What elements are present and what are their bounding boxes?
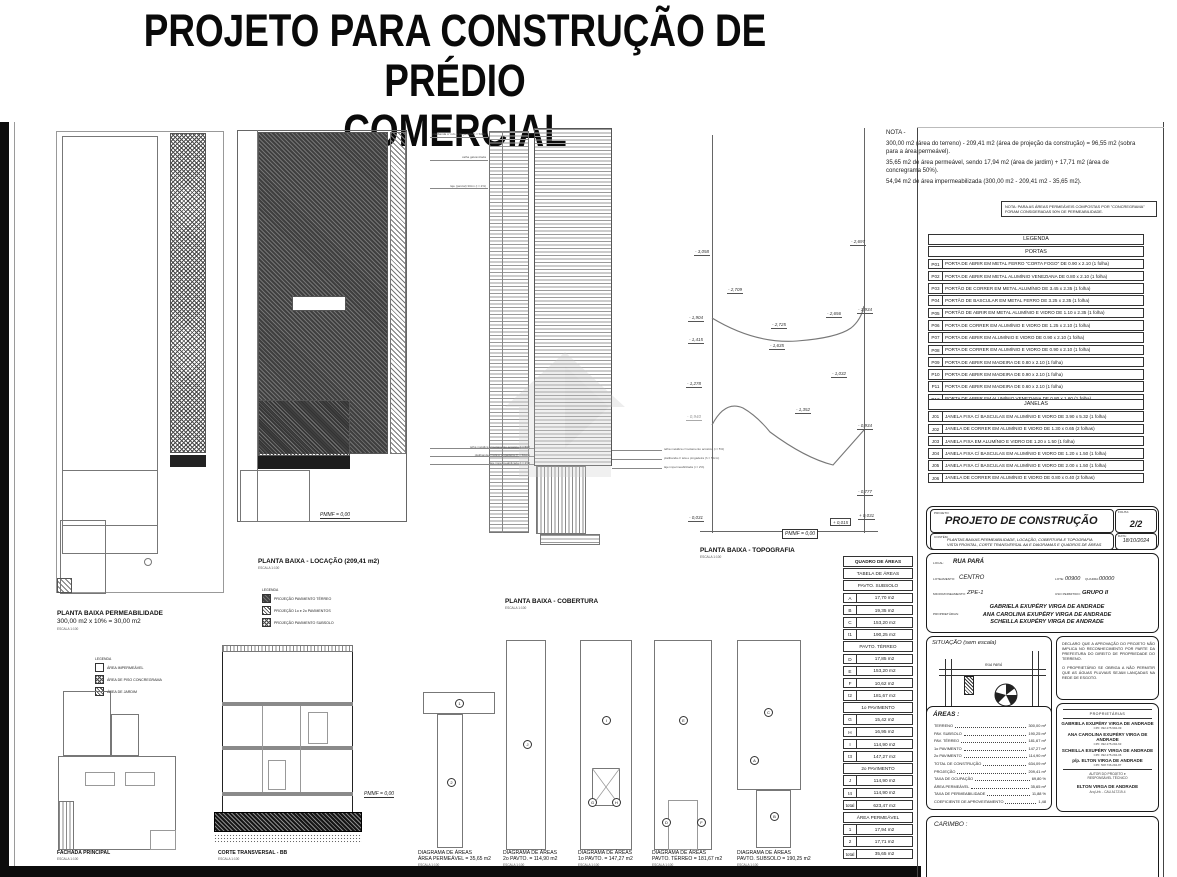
elevation-label: - 0,940 bbox=[686, 414, 702, 421]
quadro-row: t2181,67 m2 bbox=[843, 690, 913, 701]
page-title-line1: PROJETO PARA CONSTRUÇÃO DE PRÉDIO bbox=[82, 6, 828, 106]
elevation-label: - 1,032 bbox=[831, 371, 847, 378]
diagram-label-escala: ESCALA 1:100 bbox=[652, 862, 722, 868]
dotted-leader bbox=[987, 792, 1030, 796]
elevation-label: - 0,031 bbox=[688, 515, 704, 522]
quadro-row-value: 10,62 m2 bbox=[857, 681, 912, 686]
areas-row-label: TERRENO bbox=[934, 723, 953, 728]
declaracao-box: DECLARO QUE A APROVAÇÃO DO PROJETO NÃO I… bbox=[1056, 636, 1159, 700]
quadro-row-label: F bbox=[844, 679, 857, 688]
legend-permeabilidade: LEGENDA ÁREA IMPERMEÁVEL ÁREA DE PISO CO… bbox=[95, 657, 215, 699]
label-topografia: PLANTA BAIXA - TOPOGRAFIA ESCALA 1:100 bbox=[700, 547, 795, 559]
cobertura-annotation: platibanda c/ tela e pingadeira (h = 50c… bbox=[475, 453, 530, 457]
pmmf-corte: PMMF = 0,00 bbox=[364, 791, 394, 798]
area-marker: J bbox=[523, 740, 532, 749]
quadro-row: C153,20 m2 bbox=[843, 617, 913, 628]
areas-row: TOTAL DE CONSTRUÇÃO634,09 m² bbox=[934, 761, 1046, 766]
assinaturas-box: PROPRIETÁRIAS GABRIELA EXUPÉRY VIRGA DE … bbox=[1056, 703, 1159, 812]
area-marker: I bbox=[602, 716, 611, 725]
porta-row: P04PORTÃO DE BASCULAR EM METAL FERRO DE … bbox=[928, 295, 1144, 306]
diagram-label-escala: ESCALA 1:100 bbox=[737, 862, 811, 868]
swatch-concregrama bbox=[95, 675, 104, 684]
quadro-row-label: t4 bbox=[844, 789, 857, 798]
quadro-row-label: t1 bbox=[844, 630, 857, 639]
elevation-label: - 1,934 bbox=[857, 307, 873, 314]
row-desc: PORTÃO DE CORRER EM METAL ALUMÍNIO DE 3.… bbox=[943, 286, 1143, 291]
quadro-row-value: 153,20 m2 bbox=[857, 620, 912, 625]
areas-row-label: COEFICIENTE DE APROVEITAMENTO bbox=[934, 799, 1003, 804]
proprietaria-name: ANA CAROLINA EXUPÉRY VIRGA DE ANDRADE bbox=[1057, 732, 1158, 742]
elevation-label: - 2,709 bbox=[727, 287, 743, 294]
blueprint-sheet: PROJETO PARA CONSTRUÇÃO DE PRÉDIO COMERC… bbox=[0, 0, 1177, 877]
table-header: LEGENDA bbox=[928, 234, 1144, 245]
quadro-de-areas-table: QUADRO DE ÁREASTABELA DE ÁREASPAVTO. SUB… bbox=[843, 556, 913, 861]
quadro-row-value: 623,47 m2 bbox=[857, 803, 912, 808]
assinaturas-heading: PROPRIETÁRIAS bbox=[1057, 712, 1158, 716]
area-marker: C bbox=[764, 708, 773, 717]
quadro-row-value: 153,20 m2 bbox=[857, 668, 912, 673]
quadro-row-value: 114,90 m2 bbox=[857, 778, 912, 783]
areas-row: 1o PAVIMENTO147,27 m² bbox=[934, 746, 1046, 751]
lote-value: 00900 bbox=[1065, 576, 1080, 582]
janela-row: J04JANELA FIXA C/ BASCULAS EM ALUMÍNIO E… bbox=[928, 448, 1144, 459]
areas-row-value: 209,41 m² bbox=[1028, 769, 1046, 774]
row-desc: PORTÃO DE BASCULAR EM METAL FERRO DE 3.2… bbox=[943, 298, 1143, 303]
nota-line: 300,00 m2 (área do terreno) - 209,41 m2 … bbox=[886, 140, 1144, 157]
quadro-row-value: 35,65 m2 bbox=[857, 851, 912, 856]
areas-row-value: 11,88 % bbox=[1032, 791, 1046, 796]
row-code: P06 bbox=[929, 321, 943, 330]
elevation-label: + 0,031 bbox=[858, 513, 875, 520]
areas-row: 2o PAVIMENTO114,90 m² bbox=[934, 753, 1046, 758]
autor-caption: AUTOR DO PROJETO e RESPONSÁVEL TÉCNICO bbox=[1057, 772, 1158, 780]
row-code: P11 bbox=[929, 382, 943, 391]
label-corte: CORTE TRANSVERSAL - BB ESCALA 1:100 bbox=[218, 850, 287, 862]
area-marker: G bbox=[588, 798, 597, 807]
areas-row: TAXA DE PERMEABILIDADE11,88 % bbox=[934, 791, 1046, 796]
sheet-frame-line bbox=[917, 128, 918, 877]
table-header: PORTAS bbox=[928, 246, 1144, 257]
area-marker: 2 bbox=[447, 778, 456, 787]
row-desc: PORTA DE CORRER EM ALUMÍNIO E VIDRO DE 0… bbox=[943, 347, 1143, 352]
row-code: P02 bbox=[929, 272, 943, 281]
nota-line: 54,94 m2 de área impermeabilizada (300,0… bbox=[886, 178, 1144, 186]
areas-row-value: 69,80 % bbox=[1032, 776, 1046, 781]
quadro-row-value: 114,90 m2 bbox=[857, 790, 912, 795]
row-code: J02 bbox=[929, 425, 943, 434]
quadro-row-value: 147,27 m2 bbox=[857, 754, 912, 759]
contem-line2: VISTA FRONTAL, CORTE TRANSVERSAL AA E DI… bbox=[947, 542, 1101, 547]
local-value: RUA PARÁ bbox=[953, 559, 984, 565]
areas-row-label: TAXA DE OCUPAÇÃO bbox=[934, 776, 973, 781]
porta-row: P07PORTA DE ABRIR EM ALUMÍNIO E VIDRO DE… bbox=[928, 332, 1144, 343]
row-code: J06 bbox=[929, 474, 943, 483]
loteamento-label: LOTEAMENTO: bbox=[933, 577, 955, 581]
quadro-row: A17,70 m2 bbox=[843, 593, 913, 604]
areas-row-value: 190,25 m² bbox=[1028, 731, 1046, 736]
legend-locacao: LEGENDA PROJEÇÃO PAVIMENTO TÉRREO PROJEÇ… bbox=[262, 588, 402, 630]
quadro-row-label: total bbox=[844, 801, 857, 810]
porta-row: P10PORTA DE ABRIR EM MADEIRA DE 0.90 x 2… bbox=[928, 369, 1144, 380]
row-desc: PORTA DE CORRER EM ALUMÍNIO E VIDRO DE 1… bbox=[943, 323, 1143, 328]
areas-row-label: TAXA DE PERMEABILIDADE bbox=[934, 791, 985, 796]
quadro-row-value: 19,35 m2 bbox=[857, 608, 912, 613]
local-label: LOCAL: bbox=[933, 561, 944, 565]
row-code: J01 bbox=[929, 412, 943, 421]
elevation-label: - 2,697 bbox=[850, 239, 866, 246]
cobertura-annotation: laje impermeabilizada (i = 2%) bbox=[664, 465, 704, 469]
quadro-row-label: I bbox=[844, 740, 857, 749]
proprietaria-cpf: CPF: 092.275.294-06 bbox=[1057, 753, 1158, 757]
nota-permeaveis-box: NOTA: PARA AS ÁREAS PERMEÁVEIS COMPOSTAS… bbox=[1001, 201, 1157, 217]
proprietarias-names: GABRIELA EXUPÉRY VIRGA DE ANDRADE ANA CA… bbox=[957, 604, 1137, 627]
quadro-row-label: total bbox=[844, 850, 857, 859]
dotted-leader bbox=[964, 754, 1027, 758]
quadro-row: J114,90 m2 bbox=[843, 775, 913, 786]
swatch-impermeavel bbox=[95, 663, 104, 672]
area-marker: D bbox=[662, 818, 671, 827]
quadro-row-label: D bbox=[844, 655, 857, 664]
porta-row: P06PORTA DE CORRER EM ALUMÍNIO E VIDRO D… bbox=[928, 320, 1144, 331]
areas-row: TAXA DE OCUPAÇÃO69,80 % bbox=[934, 776, 1046, 781]
autor-registro: Arq.Urb. - CAU A17219-4 bbox=[1057, 790, 1158, 794]
house-watermark bbox=[505, 352, 625, 477]
quadro-section-header: 1o PAVIMENTO bbox=[843, 702, 913, 713]
areas-row-label: TOTAL DE CONSTRUÇÃO bbox=[934, 761, 981, 766]
area-marker: H bbox=[612, 798, 621, 807]
janela-row: J01JANELA FIXA C/ BASCULAS EM ALUMÍNIO E… bbox=[928, 411, 1144, 422]
folha-label: FOLHA: bbox=[1116, 510, 1156, 514]
areas-row: TERRENO300,00 m² bbox=[934, 723, 1046, 728]
quadro-row-label: B bbox=[844, 606, 857, 615]
pmmf-topografia: PMMF = 0,00 bbox=[782, 529, 818, 539]
quadra-value: 00000 bbox=[1099, 576, 1114, 582]
quadro-row-value: 17,70 m2 bbox=[857, 595, 912, 600]
areas-row-value: 300,00 m² bbox=[1028, 723, 1046, 728]
pmmf-locacao: PMMF = 0,00 bbox=[320, 512, 350, 519]
row-desc: PORTA DE ABRIR EM MADEIRA DE 0.80 x 2.10… bbox=[943, 360, 1143, 365]
swatch-proj-subsolo bbox=[262, 618, 271, 627]
row-desc: JANELA FIXA EM ALUMÍNIO E VIDRO DE 1.20 … bbox=[943, 439, 1143, 444]
area-marker: 1 bbox=[455, 699, 464, 708]
quadro-section-header: 2o PAVIMENTO bbox=[843, 763, 913, 774]
area-marker: B bbox=[770, 812, 779, 821]
portas-table: LEGENDAPORTASP01PORTA DE ABRIR EM METAL … bbox=[928, 234, 1144, 406]
quadro-row: G15,42 m2 bbox=[843, 714, 913, 725]
quadro-row-label: t3 bbox=[844, 752, 857, 761]
titleblock-info: LOCAL: RUA PARÁ LOTEAMENTO: CENTRO LOTE:… bbox=[926, 553, 1159, 633]
situacao-street-name: RUA PARÁ bbox=[985, 663, 1002, 667]
row-code: P09 bbox=[929, 358, 943, 367]
quadro-row-value: 15,42 m2 bbox=[857, 717, 912, 722]
elevation-label: - 2,725 bbox=[771, 322, 787, 329]
area-marker: F bbox=[697, 818, 706, 827]
diagram-label: DIAGRAMA DE ÁREAS1o PAVTO. = 147,27 m2ES… bbox=[578, 850, 633, 868]
quadro-row: H16,95 m2 bbox=[843, 727, 913, 738]
elevation-label: - 1,352 bbox=[795, 407, 811, 414]
swatch-proj-1e2 bbox=[262, 606, 271, 615]
quadro-row-label: A bbox=[844, 594, 857, 603]
swatch-proj-terreo bbox=[262, 594, 271, 603]
situacao-title: SITUAÇÃO (sem escala) bbox=[932, 640, 996, 646]
cobertura-annotation: telha metálica c/ isolamento acústico (i… bbox=[664, 447, 724, 451]
quadro-row-label: G bbox=[844, 715, 857, 724]
titleblock-header: PROJETO: PROJETO DE CONSTRUÇÃO FOLHA: 2/… bbox=[926, 506, 1159, 550]
label-fachada: FACHADA PRINCIPAL ESCALA 1:100 bbox=[57, 850, 110, 862]
quadro-row: F10,62 m2 bbox=[843, 678, 913, 689]
porta-row: P03PORTÃO DE CORRER EM METAL ALUMÍNIO DE… bbox=[928, 283, 1144, 294]
elevation-label: - 0,934 bbox=[857, 423, 873, 430]
nota-heading: NOTA - bbox=[886, 129, 1144, 137]
cobertura-annotation: laje impermeabilizada (i = 2%) bbox=[490, 461, 530, 465]
areas-row-value: 114,90 m² bbox=[1029, 753, 1046, 758]
quadro-row-value: 17,71 m2 bbox=[857, 839, 912, 844]
quadro-row-label: J bbox=[844, 776, 857, 785]
cobertura-annotation: platibanda c/ tela e pingadeira (h = 50c… bbox=[664, 456, 719, 460]
label-locacao: PLANTA BAIXA - LOCAÇÃO (209,41 m2) ESCAL… bbox=[258, 558, 379, 570]
quadro-row-value: 16,95 m2 bbox=[857, 729, 912, 734]
situacao-lot-marker bbox=[964, 676, 974, 695]
microzoneamento-value: ZPE-1 bbox=[967, 590, 983, 596]
areas-row-label: PROJEÇÃO bbox=[934, 769, 955, 774]
porta-row: P09PORTA DE ABRIR EM MADEIRA DE 0.80 x 2… bbox=[928, 357, 1144, 368]
elevation-label: - 2,656 bbox=[826, 311, 842, 318]
uso-permitido-label: USO PERMITIDO: bbox=[1055, 592, 1081, 596]
uso-permitido-value: GRUPO II bbox=[1082, 590, 1108, 596]
diagram-label-escala: ESCALA 1:100 bbox=[578, 862, 633, 868]
areas-row-label: PAV. TÉRREO bbox=[934, 738, 959, 743]
proprietaria-cpf: CPF: 508.736.294-87 bbox=[1057, 763, 1158, 767]
quadro-row-value: 17,85 m2 bbox=[857, 656, 912, 661]
sheet-edge-left bbox=[0, 122, 9, 877]
row-code: P05 bbox=[929, 309, 943, 318]
diagram-label: DIAGRAMA DE ÁREASÁREA PERMEÁVEL = 35,65 … bbox=[418, 850, 491, 868]
janela-row: J03JANELA FIXA EM ALUMÍNIO E VIDRO DE 1.… bbox=[928, 436, 1144, 447]
row-code: P03 bbox=[929, 284, 943, 293]
label-permeabilidade: PLANTA BAIXA PERMEABILIDADE 300,00 m2 x … bbox=[57, 610, 163, 631]
topografia-contours bbox=[655, 240, 880, 540]
row-code: J05 bbox=[929, 461, 943, 470]
data-value: 18/10/2024 bbox=[1116, 538, 1156, 544]
contem-line1: PLANTAS BAIXAS PERMEABILIDADE, LOCAÇÃO, … bbox=[947, 537, 1093, 542]
quadro-section-header: PAVTO. TÉRREO bbox=[843, 641, 913, 652]
row-desc: JANELA FIXA C/ BASCULAS EM ALUMÍNIO E VI… bbox=[943, 451, 1143, 456]
cobertura-annotation: laje (parcial) 30cm (i = 2%) bbox=[450, 184, 486, 188]
elevation-label: + 0,015 bbox=[830, 518, 851, 526]
row-code: P07 bbox=[929, 333, 943, 342]
row-desc: JANELA FIXA C/ BASCULAS EM ALUMÍNIO E VI… bbox=[943, 463, 1143, 468]
quadro-section-header: ÁREA PERMEÁVEL bbox=[843, 812, 913, 823]
areas-row-label: 2o PAVIMENTO bbox=[934, 753, 962, 758]
quadro-row-label: 1 bbox=[844, 825, 857, 834]
lote-label: LOTE: bbox=[1055, 577, 1064, 581]
quadro-row: t1190,25 m2 bbox=[843, 629, 913, 640]
areas-row: COEFICIENTE DE APROVEITAMENTO1,48 bbox=[934, 799, 1046, 804]
quadro-row: D17,85 m2 bbox=[843, 654, 913, 665]
sheet-frame-line bbox=[14, 122, 15, 866]
porta-row: P08PORTA DE CORRER EM ALUMÍNIO E VIDRO D… bbox=[928, 345, 1144, 356]
janelas-table: JANELASJ01JANELA FIXA C/ BASCULAS EM ALU… bbox=[928, 399, 1144, 485]
quadro-row-label: E bbox=[844, 667, 857, 676]
label-cobertura: PLANTA BAIXA - COBERTURA ESCALA 1:100 bbox=[505, 598, 598, 610]
row-code: P10 bbox=[929, 370, 943, 379]
row-desc: JANELA FIXA C/ BASCULAS EM ALUMÍNIO E VI… bbox=[943, 414, 1143, 419]
sheet-frame-line bbox=[917, 127, 1164, 128]
porta-row: P05PORTÃO DE ABRIR EM METAL ALUMÍNIO E V… bbox=[928, 308, 1144, 319]
porta-row: P11PORTA DE ABRIR EM MADEIRA DE 0.60 x 2… bbox=[928, 381, 1144, 392]
row-code: P04 bbox=[929, 296, 943, 305]
quadro-row-label: 2 bbox=[844, 837, 857, 846]
quadro-row: E153,20 m2 bbox=[843, 666, 913, 677]
quadro-row-label: C bbox=[844, 618, 857, 627]
quadro-row: t4114,90 m2 bbox=[843, 788, 913, 799]
carimbo-box: CARIMBO : bbox=[926, 816, 1159, 877]
areas-row-value: 634,09 m² bbox=[1028, 761, 1046, 766]
row-desc: JANELA DE CORRER EM ALUMÍNIO E VIDRO DE … bbox=[943, 426, 1143, 431]
row-code: J03 bbox=[929, 437, 943, 446]
quadro-row-value: 17,94 m2 bbox=[857, 827, 912, 832]
projeto-value: PROJETO DE CONSTRUÇÃO bbox=[945, 515, 1098, 527]
table-header: JANELAS bbox=[928, 399, 1144, 410]
areas-row-value: 1,48 bbox=[1038, 799, 1046, 804]
quadro-row: total623,47 m2 bbox=[843, 800, 913, 811]
diagram-label: DIAGRAMA DE ÁREASPAVTO. TÉRREO = 181,67 … bbox=[652, 850, 722, 868]
quadro-row: total35,65 m2 bbox=[843, 849, 913, 860]
diagram-label-escala: ESCALA 1:100 bbox=[418, 862, 491, 868]
folha-value: 2/2 bbox=[1130, 519, 1143, 529]
dotted-leader bbox=[955, 724, 1026, 728]
areas-row-value: 35,65 m² bbox=[1031, 784, 1046, 789]
quadra-label: QUADRA: bbox=[1085, 577, 1099, 581]
quadro-title: QUADRO DE ÁREAS bbox=[843, 556, 913, 567]
proprietaria-name: SCHEILLA EXUPÉRY VIRGA DE ANDRADE bbox=[1057, 748, 1158, 753]
proprietarias-label: PROPRIETÁRIAS: bbox=[933, 612, 959, 616]
area-marker: E bbox=[679, 716, 688, 725]
elevation-label: - 3,058 bbox=[694, 249, 710, 256]
quadro-row: t3147,27 m2 bbox=[843, 751, 913, 762]
nota-line: 35,65 m2 de área permeável, sendo 17,94 … bbox=[886, 159, 1144, 176]
diagram-label: DIAGRAMA DE ÁREAS2o PAVTO. = 114,90 m2ES… bbox=[503, 850, 557, 868]
declaracao-text: DECLARO QUE A APROVAÇÃO DO PROJETO NÃO I… bbox=[1062, 642, 1155, 681]
dotted-leader bbox=[964, 732, 1027, 736]
nota-text: NOTA - 300,00 m2 (área do terreno) - 209… bbox=[886, 129, 1144, 189]
quadro-row: 217,71 m2 bbox=[843, 836, 913, 847]
row-desc: PORTA DE ABRIR EM MADEIRA DE 0.90 x 2.10… bbox=[943, 372, 1143, 377]
cobertura-annotation: calha galvanizada bbox=[462, 155, 486, 159]
quadro-row: 117,94 m2 bbox=[843, 824, 913, 835]
diagram-label-escala: ESCALA 1:100 bbox=[503, 862, 557, 868]
areas-row: PROJEÇÃO209,41 m² bbox=[934, 769, 1046, 774]
janela-row: J02JANELA DE CORRER EM ALUMÍNIO E VIDRO … bbox=[928, 424, 1144, 435]
microzoneamento-label: MICROZONEAMENTO: bbox=[933, 592, 966, 596]
row-code: P08 bbox=[929, 346, 943, 355]
row-code: J04 bbox=[929, 449, 943, 458]
row-desc: PORTA DE ABRIR EM MADEIRA DE 0.60 x 2.10… bbox=[943, 384, 1143, 389]
proprietaria-cpf: CPF: 092.275.294-63 bbox=[1057, 742, 1158, 746]
assinaturas-entries: GABRIELA EXUPÉRY VIRGA DE ANDRADECPF: 09… bbox=[1057, 721, 1158, 767]
areas-row-value: 147,27 m² bbox=[1028, 746, 1046, 751]
janela-row: J05JANELA FIXA C/ BASCULAS EM ALUMÍNIO E… bbox=[928, 460, 1144, 471]
row-desc: PORTÃO DE ABRIR EM METAL ALUMÍNIO E VIDR… bbox=[943, 310, 1143, 315]
quadro-row-value: 190,25 m2 bbox=[857, 632, 912, 637]
quadro-row: I114,90 m2 bbox=[843, 739, 913, 750]
areas-row: ÁREA PERMEÁVEL35,65 m² bbox=[934, 784, 1046, 789]
row-desc: PORTA DE ABRIR EM METAL ALUMÍNIO VENEZIA… bbox=[943, 274, 1143, 279]
cobertura-annotation: telha metálica c/ isolamento acústico (i… bbox=[470, 445, 530, 449]
dotted-leader bbox=[971, 785, 1028, 789]
areas-title: ÁREAS : bbox=[933, 711, 959, 718]
areas-box: ÁREAS : TERRENO300,00 m²PAV. SUBSOLO190,… bbox=[926, 706, 1052, 810]
quadro-section-header: TABELA DE ÁREAS bbox=[843, 568, 913, 579]
dotted-leader bbox=[983, 762, 1026, 766]
area-marker: A bbox=[750, 756, 759, 765]
diagram-label: DIAGRAMA DE ÁREASPAVTO. SUBSOLO = 190,25… bbox=[737, 850, 811, 868]
quadro-row-label: t2 bbox=[844, 691, 857, 700]
elevation-label: - 1,278 bbox=[686, 381, 702, 388]
porta-row: P02PORTA DE ABRIR EM METAL ALUMÍNIO VENE… bbox=[928, 271, 1144, 282]
dotted-leader bbox=[957, 770, 1026, 774]
dotted-leader bbox=[961, 739, 1026, 743]
quadro-section-header: PAVTO. SUBSOLO bbox=[843, 580, 913, 591]
janela-row: J06JANELA DE CORRER EM ALUMÍNIO E VIDRO … bbox=[928, 473, 1144, 484]
loteamento-value: CENTRO bbox=[959, 575, 984, 581]
quadro-row: B19,35 m2 bbox=[843, 605, 913, 616]
cobertura-annotation: platibanda c/ rufo e pingadeira h = 50cm bbox=[432, 132, 486, 136]
areas-row-label: PAV. SUBSOLO bbox=[934, 731, 962, 736]
elevation-label: - 1,904 bbox=[688, 315, 704, 322]
areas-rows: TERRENO300,00 m²PAV. SUBSOLO190,25 m²PAV… bbox=[934, 723, 1046, 807]
elevation-label: - 1,415 bbox=[688, 337, 704, 344]
areas-row-label: 1o PAVIMENTO bbox=[934, 746, 962, 751]
proprietaria-cpf: CPF: 092.275.994-09 bbox=[1057, 726, 1158, 730]
dotted-leader bbox=[1005, 800, 1036, 804]
row-desc: JANELA DE CORRER EM ALUMÍNIO E VIDRO DE … bbox=[943, 475, 1143, 480]
dotted-leader bbox=[975, 777, 1030, 781]
elevation-label: - 1,635 bbox=[769, 343, 785, 350]
dotted-leader bbox=[964, 747, 1027, 751]
areas-row-value: 181,67 m² bbox=[1028, 738, 1046, 743]
quadro-row-label: H bbox=[844, 728, 857, 737]
porta-row: P01PORTA DE ABRIR EM METAL FERRO "CORTA … bbox=[928, 259, 1144, 270]
row-desc: PORTA DE ABRIR EM ALUMÍNIO E VIDRO DE 0.… bbox=[943, 335, 1143, 340]
carimbo-title: CARIMBO : bbox=[934, 821, 967, 828]
areas-row: PAV. SUBSOLO190,25 m² bbox=[934, 731, 1046, 736]
quadro-row-value: 114,90 m2 bbox=[857, 742, 912, 747]
quadro-row-value: 181,67 m2 bbox=[857, 693, 912, 698]
elevation-label: - 0,777 bbox=[857, 489, 873, 496]
areas-row: PAV. TÉRREO181,67 m² bbox=[934, 738, 1046, 743]
row-code: P01 bbox=[929, 260, 943, 269]
areas-row-label: ÁREA PERMEÁVEL bbox=[934, 784, 969, 789]
row-desc: PORTA DE ABRIR EM METAL FERRO "CORTA FOG… bbox=[943, 261, 1143, 266]
sheet-frame-line bbox=[1163, 122, 1164, 877]
